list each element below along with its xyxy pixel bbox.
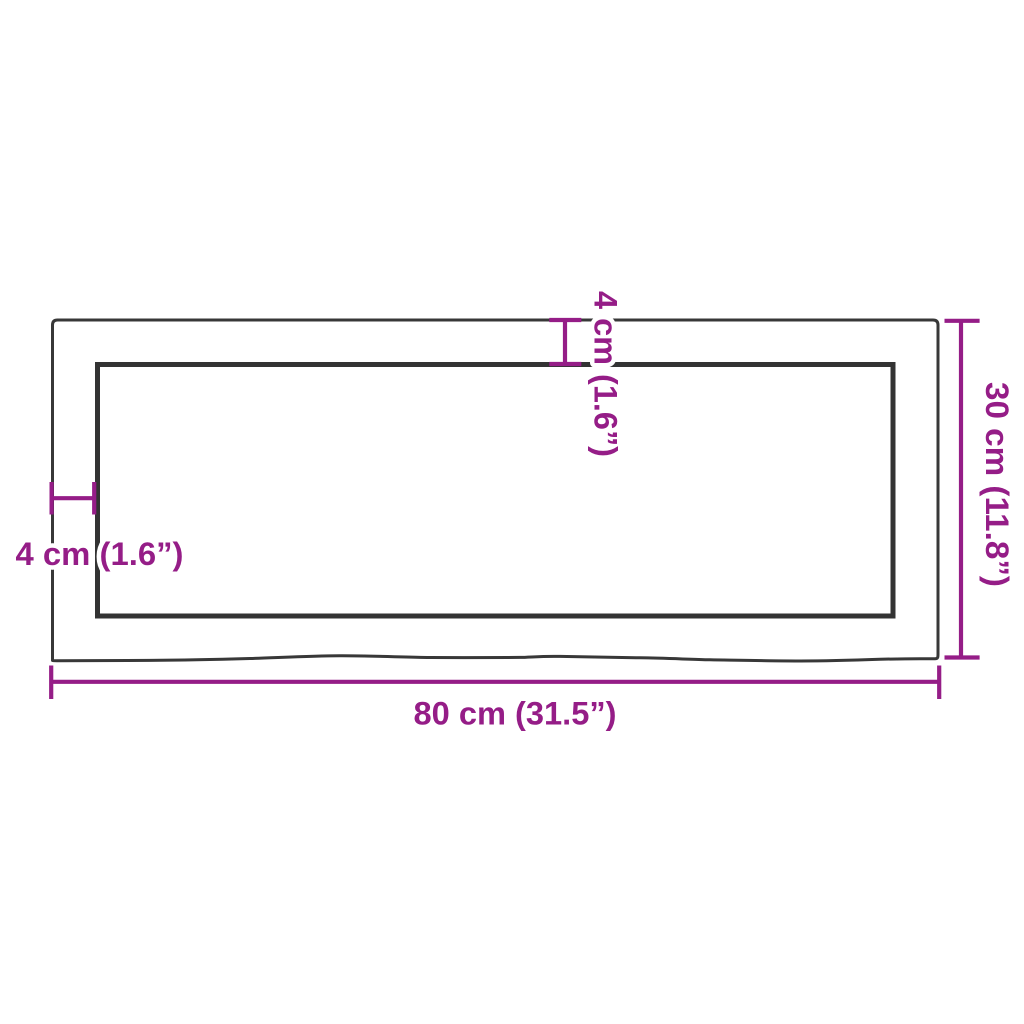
svg-text:80 cm (31.5”): 80 cm (31.5”) (414, 696, 617, 732)
svg-text:4 cm (1.6”): 4 cm (1.6”) (16, 536, 184, 572)
svg-text:30 cm (11.8”): 30 cm (11.8”) (979, 382, 1015, 587)
svg-text:4 cm (1.6”): 4 cm (1.6”) (588, 291, 624, 457)
